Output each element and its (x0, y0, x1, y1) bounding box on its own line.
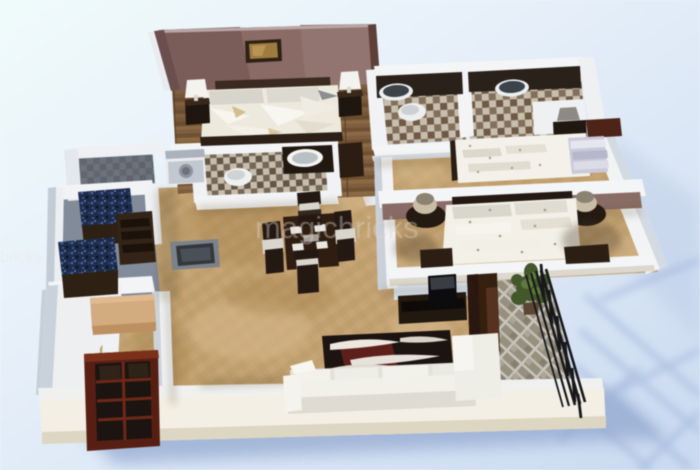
svg-text:magicbricks: magicbricks (255, 210, 419, 245)
svg-text:bricks: bricks (0, 249, 42, 266)
